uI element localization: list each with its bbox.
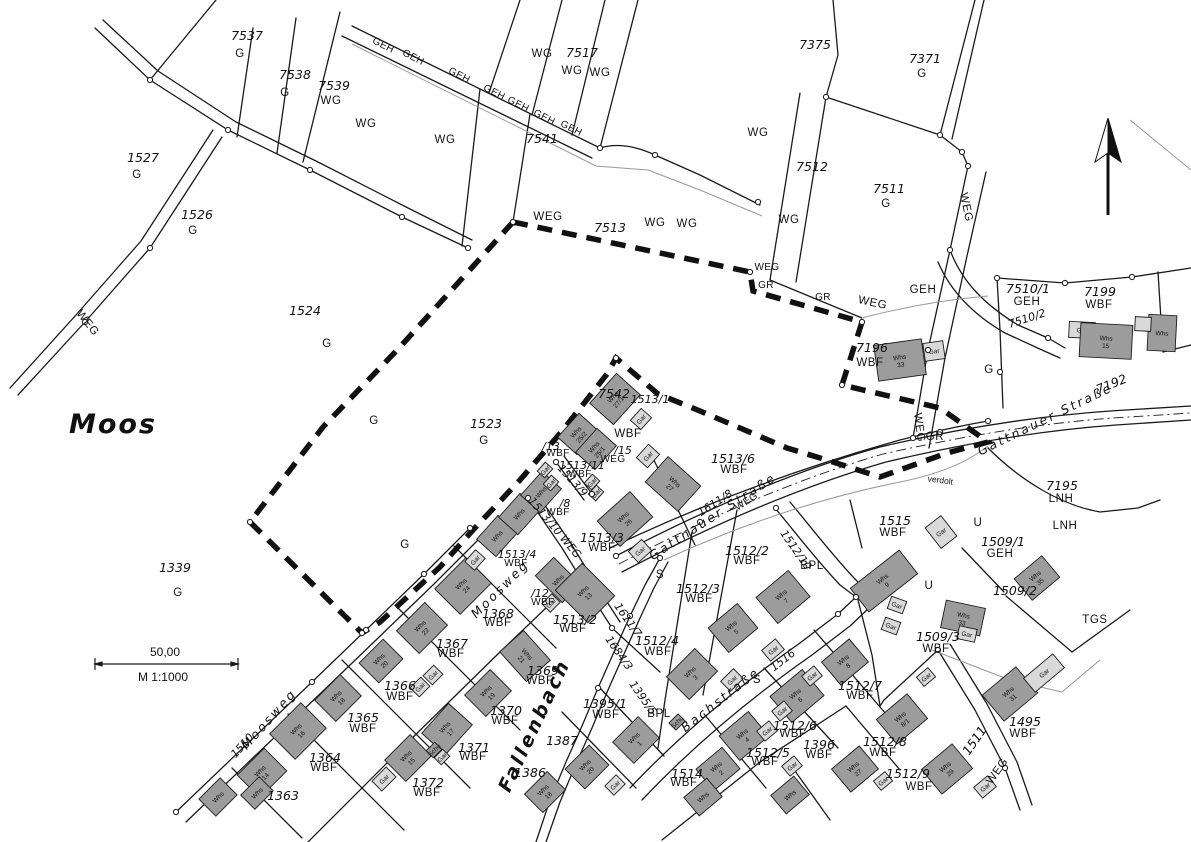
usage-code-label: WG (435, 134, 456, 146)
parcel-number-label: 7510/1 (1006, 281, 1050, 296)
parcel-number-label: 7542 (598, 386, 630, 401)
street-name-label: Gattnauer Straße (975, 380, 1115, 459)
usage-code-label: GEH (370, 36, 395, 56)
usage-code-label: G (479, 435, 489, 447)
usage-code-label: WBF (879, 527, 906, 539)
usage-code-label: G (917, 68, 927, 80)
usage-code-label: GR (758, 280, 774, 291)
building-house: Whs27 (645, 457, 700, 512)
parcel-number-label: 1495 (1009, 714, 1041, 729)
usage-code-label: WBF (531, 597, 554, 608)
usage-code-label: WBF (720, 464, 747, 476)
building-label: Gar (540, 464, 553, 477)
parcel-number-label: 1509/2 (993, 583, 1037, 598)
building-garage: Gar (887, 596, 906, 614)
parcel-number-label: 1515 (879, 513, 911, 528)
usage-code-label: WEG (857, 294, 888, 312)
usage-code-label: GEH (531, 108, 556, 128)
building-house: Whs5 (708, 604, 758, 653)
usage-code-label: WBF (670, 777, 697, 789)
parcel-number-label: 7512 (796, 159, 828, 174)
usage-code-label: G (984, 364, 994, 376)
parcel-number-label: 1512/9 (886, 766, 930, 781)
usage-code-label: G (322, 338, 332, 350)
usage-code-label: WG (645, 217, 666, 229)
building-garage: Gar (881, 617, 900, 635)
usage-code-label: WBF (459, 751, 486, 763)
usage-code-label: WBF (805, 749, 832, 761)
usage-code-label: WBF (386, 691, 413, 703)
parcel-number-label: 1513/1 (631, 393, 670, 406)
usage-code-label: U (974, 517, 983, 529)
usage-code-label: WBF (1085, 299, 1112, 311)
map-canvas: Whs33GarGarWhs15WhsWhs9GarGarGarWhs35Whs… (0, 0, 1191, 842)
usage-code-label: GEH (481, 83, 506, 103)
usage-code-label: WBF (559, 623, 586, 635)
parcel-number-label: 1526 (181, 207, 213, 222)
usage-code-label: WBF (491, 715, 518, 727)
usage-code-label: WBF (588, 542, 615, 554)
usage-code-label: WBF (846, 690, 873, 702)
parcel-number-label: 1523 (470, 416, 502, 431)
building-label: Whs (1099, 335, 1113, 343)
usage-code-label: WBF (922, 643, 949, 655)
usage-code-label: WBF (733, 555, 760, 567)
usage-code-label: WG (677, 218, 698, 230)
usage-code-label: GR (926, 431, 944, 443)
usage-code-label: WBF (685, 593, 712, 605)
usage-code-label: G (132, 169, 142, 181)
building-garage: Gar (372, 767, 396, 791)
usage-code-label: WG (532, 48, 553, 60)
usage-code-label: GEH (505, 95, 530, 115)
usage-code-label: GR (815, 292, 831, 303)
usage-code-label: verdolt (927, 473, 954, 487)
north-arrow-icon (1095, 118, 1121, 215)
usage-code-label: WEG (600, 454, 625, 465)
usage-code-label: WG (590, 67, 611, 79)
usage-code-label: WEG (533, 211, 562, 223)
usage-code-label: G (369, 415, 379, 427)
usage-code-label: GEH (910, 284, 937, 296)
parcel-number-label: 1509/3 (916, 629, 960, 644)
usage-code-label: BPL (800, 560, 824, 572)
building-garage: Gar (605, 775, 626, 796)
parcel-number-label: 1527 (127, 150, 159, 165)
usage-code-label: WBF (592, 709, 619, 721)
usage-code-label: GEH (1014, 296, 1041, 308)
usage-code-label: S (656, 569, 664, 581)
usage-code-label: LNH (1053, 520, 1078, 532)
building-house: Whs (199, 778, 237, 816)
usage-code-label: GEH (446, 66, 471, 86)
parcel-number-label: 7537 (231, 28, 263, 43)
usage-code-label: TGS (1082, 614, 1107, 626)
cadastral-map-sheet: Whs33GarGarWhs15WhsWhs9GarGarGarWhs35Whs… (0, 0, 1191, 842)
usage-code-label: U (925, 580, 934, 592)
usage-code-label: WBF (614, 428, 641, 440)
dash-dot-boundary (619, 413, 1191, 564)
usage-code-label: GEH (400, 48, 425, 68)
usage-code-label: G (881, 198, 891, 210)
usage-code-label: WG (562, 65, 583, 77)
parcel-number-label: 7513 (594, 220, 626, 235)
usage-code-label: WBF (644, 646, 671, 658)
parcel-number-label: 7371 (909, 51, 941, 66)
usage-code-label: WBF (869, 747, 896, 759)
building-house: Whs9 (850, 550, 917, 612)
building-house: Whs20 (565, 745, 609, 789)
building-label: Whs (1155, 330, 1169, 338)
parcel-number-label: 7196 (856, 340, 888, 355)
parcel-number-label: 1395/5 (626, 678, 659, 717)
scale-bar (95, 658, 238, 670)
scale-distance: 50,00 (150, 645, 180, 659)
usage-code-label: G (400, 539, 410, 551)
building-house: Whs20 (359, 639, 403, 683)
usage-code-label: WEG (74, 308, 101, 338)
parcel-number-label: 1509/1 (981, 534, 1025, 549)
parcel-number-label: 1387 (546, 733, 578, 748)
usage-code-label: WG (748, 127, 769, 139)
usage-code-label: WBF (856, 357, 883, 369)
parcel-number-label: 7511 (873, 181, 905, 196)
usage-code-label: GEH (558, 119, 583, 139)
building-garage: Gar (925, 516, 957, 549)
usage-code-label: G (280, 87, 290, 99)
usage-code-label: WBF (437, 648, 464, 660)
usage-code-label: WBF (751, 756, 778, 768)
building-garage: Gar (630, 408, 651, 429)
usage-code-label: G (235, 48, 245, 60)
parcel-number-label: 1524 (289, 303, 321, 318)
usage-code-label: G (188, 225, 198, 237)
parcel-number-label: 7510/2 (1007, 307, 1048, 331)
building-garage: Gar (916, 668, 935, 687)
region-label: Moos (69, 409, 157, 440)
usage-code-label: WG (779, 214, 800, 226)
usage-code-label: WBF (546, 448, 569, 459)
parcel-number-label: 1339 (159, 560, 191, 575)
parcel-number-label: 7375 (799, 37, 831, 52)
parcel-number-label: 7541 (526, 131, 558, 146)
usage-code-label: LNH (1049, 493, 1074, 505)
house-number-label: 33 (897, 361, 906, 369)
usage-code-label: G (173, 587, 183, 599)
parcel-number-label: 7538 (279, 67, 311, 82)
parcel-number-label: 7195 (1046, 478, 1078, 493)
parcel-number-label: 1363 (267, 788, 299, 803)
usage-code-label: WEG (754, 262, 779, 273)
parcel-number-label: 7539 (318, 78, 350, 93)
usage-code-label: WBF (310, 762, 337, 774)
parcel-number-label: 7517 (566, 45, 598, 60)
building-house: Whs15 (1079, 323, 1133, 360)
buildings-layer: Whs33GarGarWhs15WhsWhs9GarGarGarWhs35Whs… (199, 314, 1177, 816)
building-garage (1135, 317, 1152, 332)
usage-code-label: WBF (1009, 728, 1036, 740)
usage-code-label: WBF (905, 781, 932, 793)
house-number-label: 15 (1102, 343, 1110, 350)
parcel-number-label: 7199 (1084, 284, 1116, 299)
usage-code-label: WBF (349, 723, 376, 735)
usage-code-label: WBF (484, 617, 511, 629)
usage-code-label: WG (356, 118, 377, 130)
building-house: Whs1 (613, 717, 660, 764)
usage-code-label: GEH (987, 548, 1014, 560)
usage-code-label: WG (321, 95, 342, 107)
scale-ratio: M 1:1000 (138, 670, 188, 684)
usage-code-label: WBF (413, 787, 440, 799)
building-house: Whs7 (756, 570, 810, 623)
